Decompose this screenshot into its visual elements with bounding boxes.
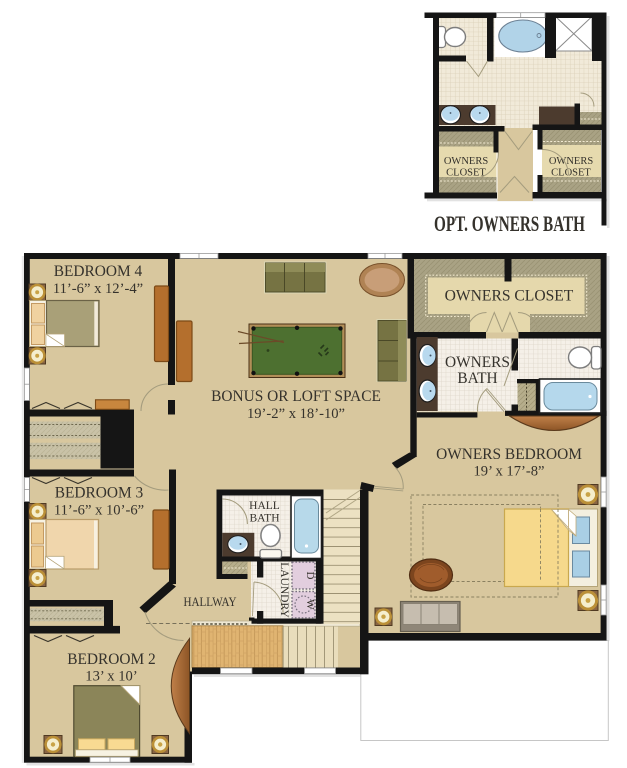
svg-text:W: W <box>304 599 316 610</box>
svg-text:13’ x 10’: 13’ x 10’ <box>85 669 137 685</box>
svg-text:BONUS OR LOFT SPACE: BONUS OR LOFT SPACE <box>211 388 381 405</box>
svg-text:BATH: BATH <box>457 370 497 387</box>
svg-text:HALLWAY: HALLWAY <box>184 595 237 609</box>
svg-text:OWNERS: OWNERS <box>445 354 510 371</box>
svg-text:11’-6” x 12’-4”: 11’-6” x 12’-4” <box>53 281 143 297</box>
svg-text:19’-2” x 18’-10”: 19’-2” x 18’-10” <box>247 406 345 422</box>
svg-text:LAUNDRY: LAUNDRY <box>278 562 290 618</box>
svg-text:OWNERS BEDROOM: OWNERS BEDROOM <box>436 446 582 463</box>
svg-text:BEDROOM 4: BEDROOM 4 <box>54 263 143 280</box>
svg-text:BATH: BATH <box>249 513 279 525</box>
svg-text:BEDROOM 3: BEDROOM 3 <box>55 485 144 502</box>
svg-text:OPT. OWNERS BATH: OPT. OWNERS BATH <box>434 211 585 236</box>
svg-text:11’-6” x 10’-6”: 11’-6” x 10’-6” <box>54 503 144 519</box>
svg-text:OWNERS: OWNERS <box>444 156 488 167</box>
svg-text:OWNERS CLOSET: OWNERS CLOSET <box>445 288 574 305</box>
svg-text:HALL: HALL <box>249 500 280 512</box>
svg-text:BEDROOM 2: BEDROOM 2 <box>67 651 156 668</box>
svg-text:D: D <box>304 572 316 580</box>
svg-text:19’ x 17’-8”: 19’ x 17’-8” <box>473 464 544 480</box>
svg-text:OWNERS: OWNERS <box>549 156 593 167</box>
svg-text:CLOSET: CLOSET <box>551 168 591 179</box>
